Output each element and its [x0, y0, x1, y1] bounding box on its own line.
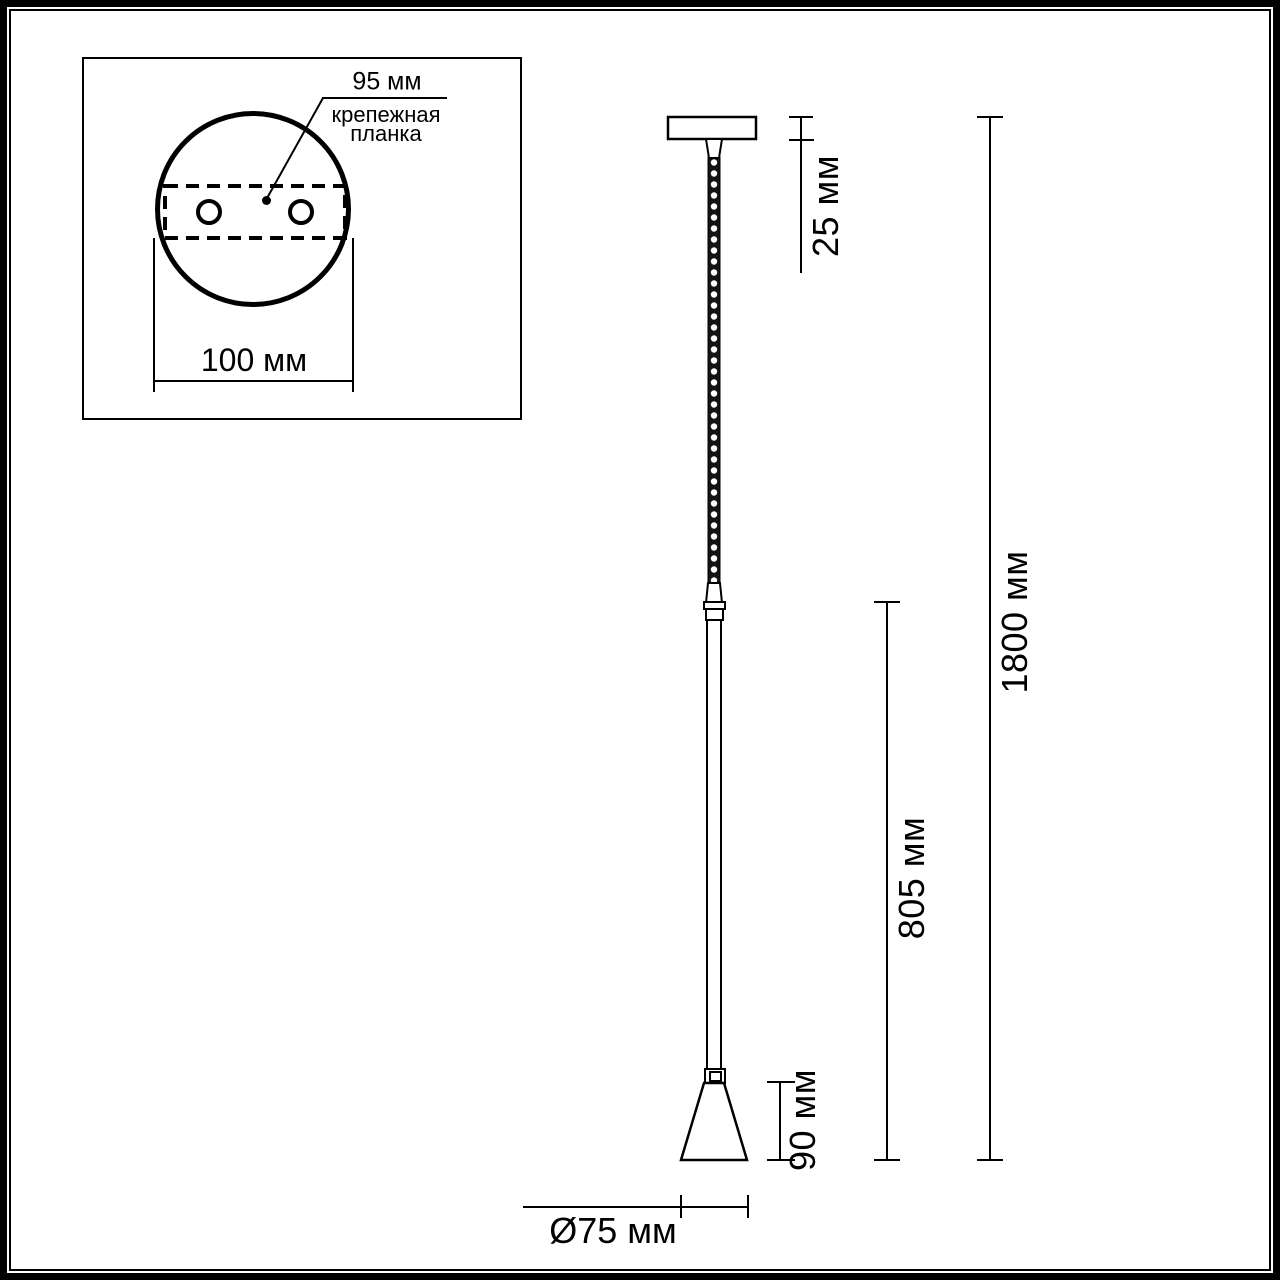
canopy-height-label: 25 мм [808, 155, 844, 257]
screw-hole-left [196, 199, 222, 225]
rod-length-dimension-line [886, 602, 888, 1161]
leader-dot [262, 196, 271, 205]
shade-diameter-tick-right [747, 1195, 749, 1218]
extension-line-left [153, 238, 155, 392]
leader-line-horizontal [322, 97, 447, 99]
rod-length-label: 805 мм [894, 817, 930, 940]
canopy-height-tick-top [789, 116, 813, 118]
drawing-canvas: 95 мм крепежная планка 100 мм 25 мм 1800… [0, 0, 1280, 1280]
total-height-tick-bottom [977, 1159, 1003, 1161]
plate-width-dimension-line [153, 380, 354, 382]
ceiling-canopy-top-view [155, 111, 351, 307]
mounting-plate-label: крепежная планка [331, 105, 440, 143]
shade-diameter-tick-left [680, 1195, 682, 1218]
extension-line-right [352, 238, 354, 392]
canopy-height-tick-bottom [789, 139, 814, 141]
total-height-dimension-line [989, 117, 991, 1161]
hole-spacing-label: 95 мм [352, 70, 421, 95]
total-height-label: 1800 мм [997, 550, 1033, 693]
rod-length-tick-top [874, 601, 900, 603]
rod-length-tick-bottom [874, 1159, 900, 1161]
shade-diameter-dimension-line [523, 1206, 749, 1208]
screw-hole-right [288, 199, 314, 225]
plate-width-label: 100 мм [201, 344, 307, 376]
shade-height-dimension-line [779, 1082, 781, 1161]
total-height-tick-top [977, 116, 1003, 118]
shade-height-label: 90 мм [785, 1069, 821, 1171]
shade-diameter-label: Ø75 мм [549, 1213, 677, 1249]
